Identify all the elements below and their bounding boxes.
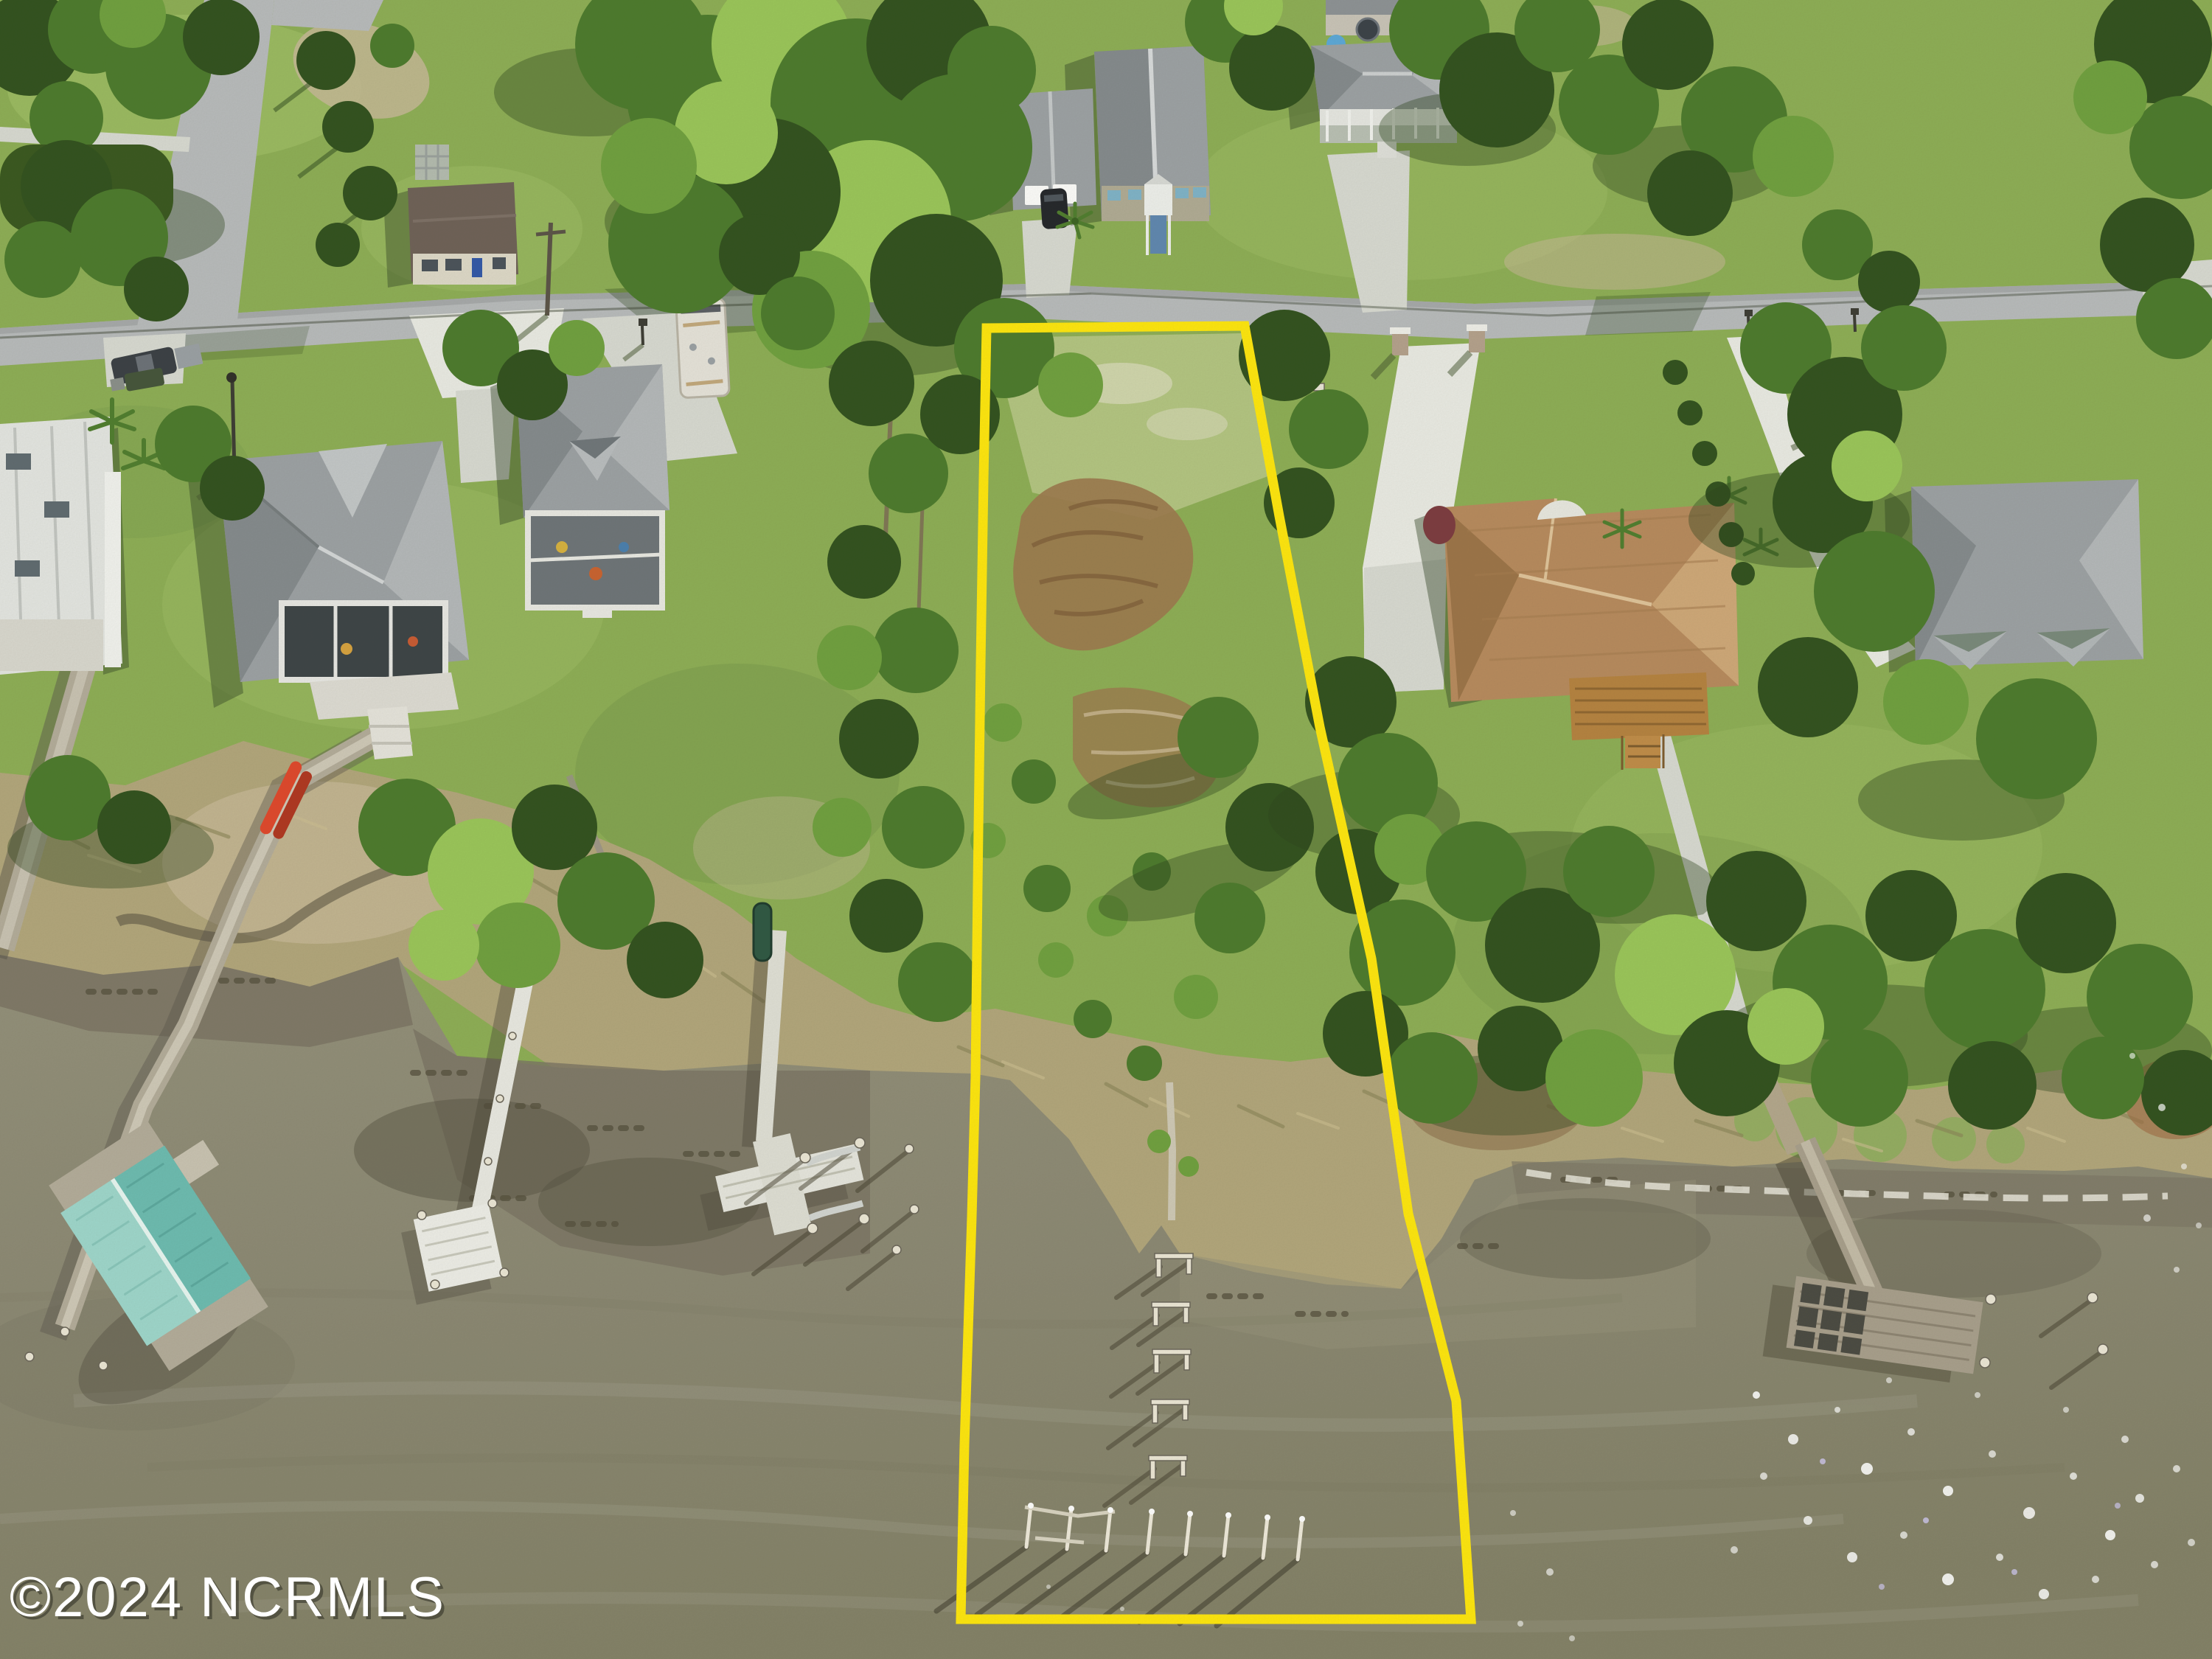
photo-grain xyxy=(0,0,2212,1659)
aerial-photo-stage: ©2024 NCRMLS ©2024 NCRMLS xyxy=(0,0,2212,1659)
watermark-text: ©2024 NCRMLS xyxy=(10,1566,445,1629)
aerial-photo: ©2024 NCRMLS ©2024 NCRMLS xyxy=(0,0,2212,1659)
